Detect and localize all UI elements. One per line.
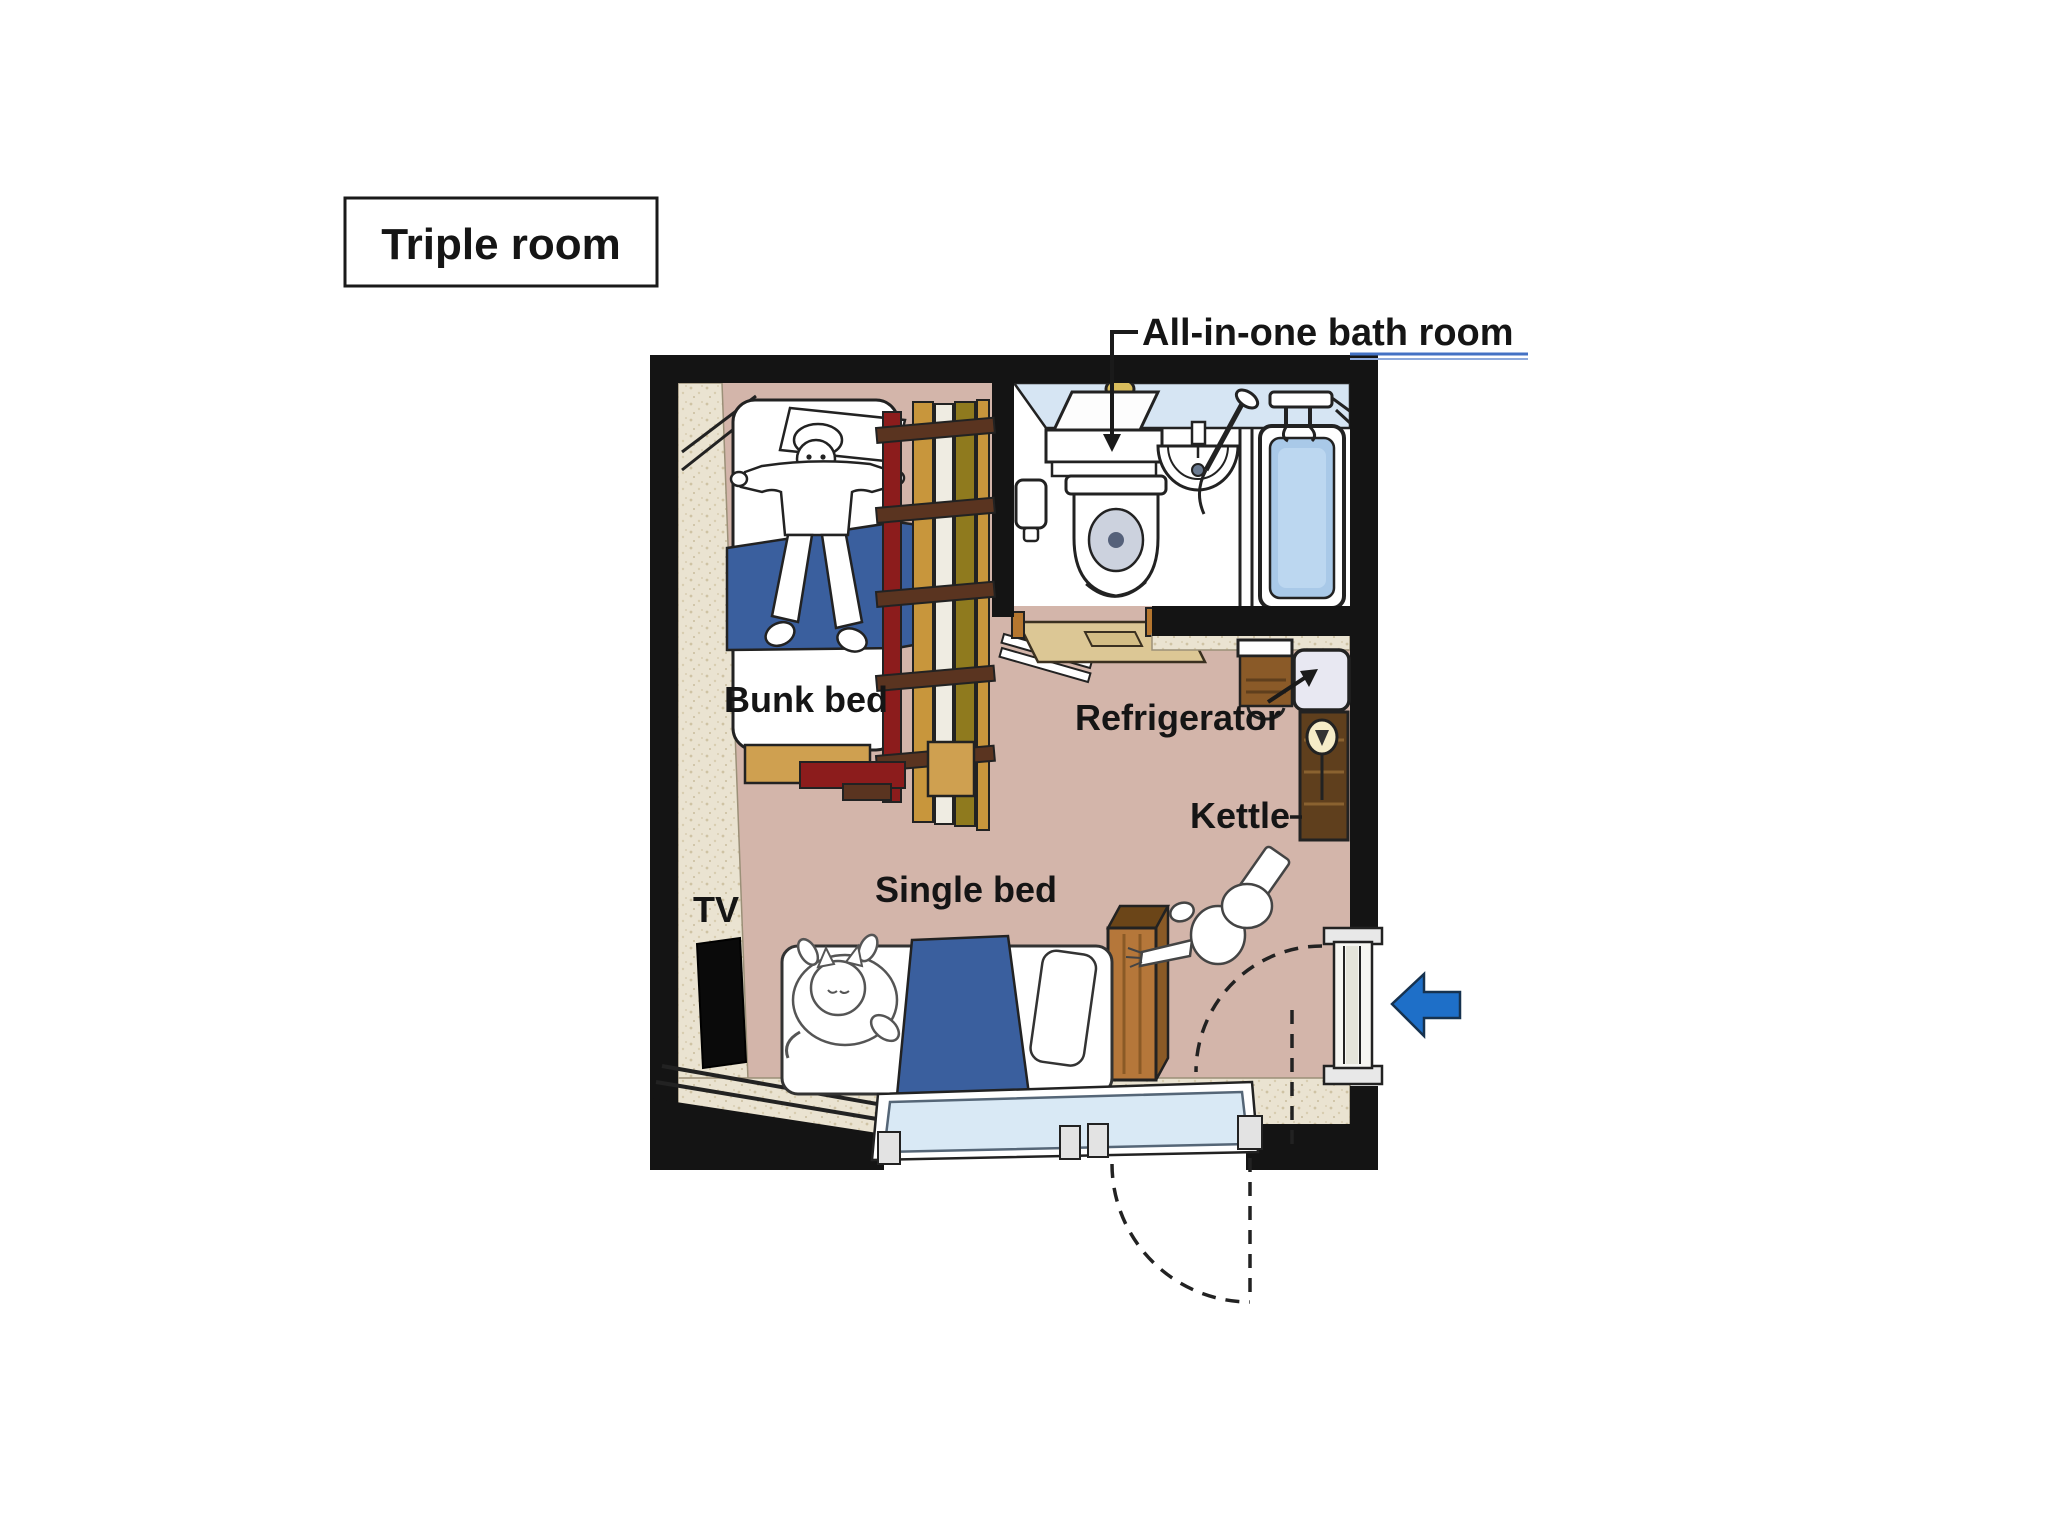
entrance-arrow-icon (1392, 974, 1460, 1036)
floor-plan-svg: Triple room (0, 0, 2048, 1536)
headboard-side (1156, 906, 1168, 1080)
genkan-mat-inset (1085, 632, 1142, 646)
bunk-bed: Bunk bed (724, 400, 995, 830)
bunk-bed-label: Bunk bed (724, 679, 888, 720)
tv-screen (697, 938, 746, 1068)
wall-bathroom-bottom (1152, 606, 1350, 636)
refrigerator-label: Refrigerator (1075, 697, 1281, 738)
wall-divider (992, 355, 1014, 617)
counter-lip (1052, 462, 1156, 476)
bathtub (1260, 426, 1344, 608)
wall-left (650, 355, 678, 1103)
window-swing-arc (1112, 1164, 1250, 1302)
page-title: Triple room (381, 220, 621, 269)
wall-bottom-right (1246, 1124, 1378, 1170)
tv-label: TV (693, 889, 739, 930)
kettle-label: Kettle (1190, 795, 1290, 836)
kettle-cabinet (1300, 712, 1348, 840)
single-bed-blanket (896, 936, 1030, 1106)
bathroom-label: All-in-one bath room (1142, 312, 1514, 354)
tv: TV (693, 889, 746, 1068)
title-box: Triple room (345, 198, 657, 286)
floor-plan-page: Triple room (0, 0, 2048, 1536)
single-bed-label: Single bed (875, 869, 1057, 910)
bathroom (1014, 379, 1362, 608)
bathroom-mirror (1054, 392, 1158, 430)
wall-right-upper (1350, 355, 1378, 928)
window (872, 1082, 1262, 1164)
